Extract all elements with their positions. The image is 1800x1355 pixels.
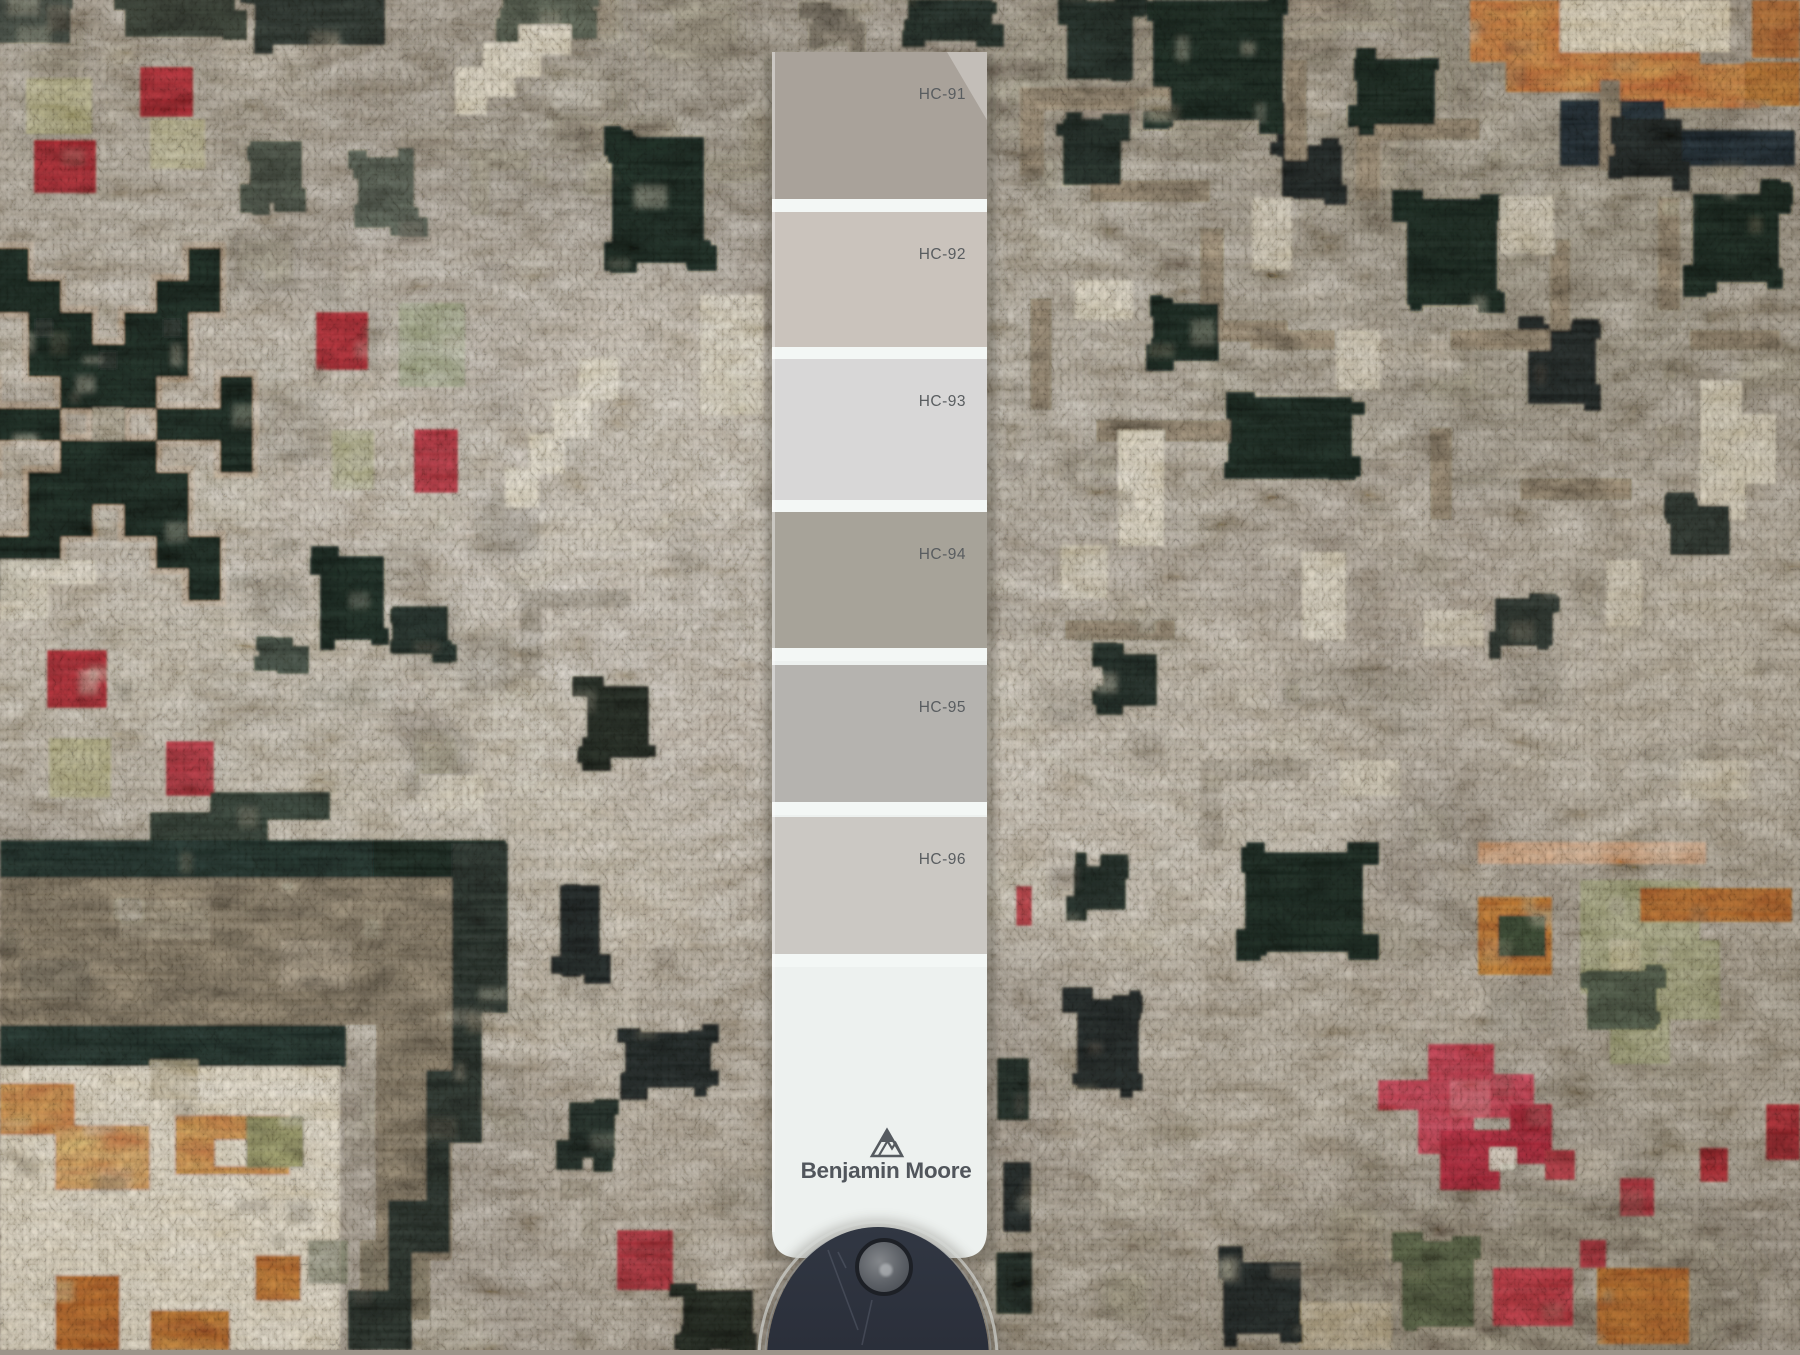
svg-text:HC-92: HC-92 — [919, 246, 966, 263]
svg-text:HC-94: HC-94 — [919, 546, 966, 563]
svg-text:HC-95: HC-95 — [919, 699, 966, 716]
svg-text:Benjamin Moore: Benjamin Moore — [801, 1158, 972, 1183]
svg-text:HC-96: HC-96 — [919, 851, 966, 868]
svg-text:HC-91: HC-91 — [919, 86, 966, 103]
svg-text:HC-93: HC-93 — [919, 393, 966, 410]
